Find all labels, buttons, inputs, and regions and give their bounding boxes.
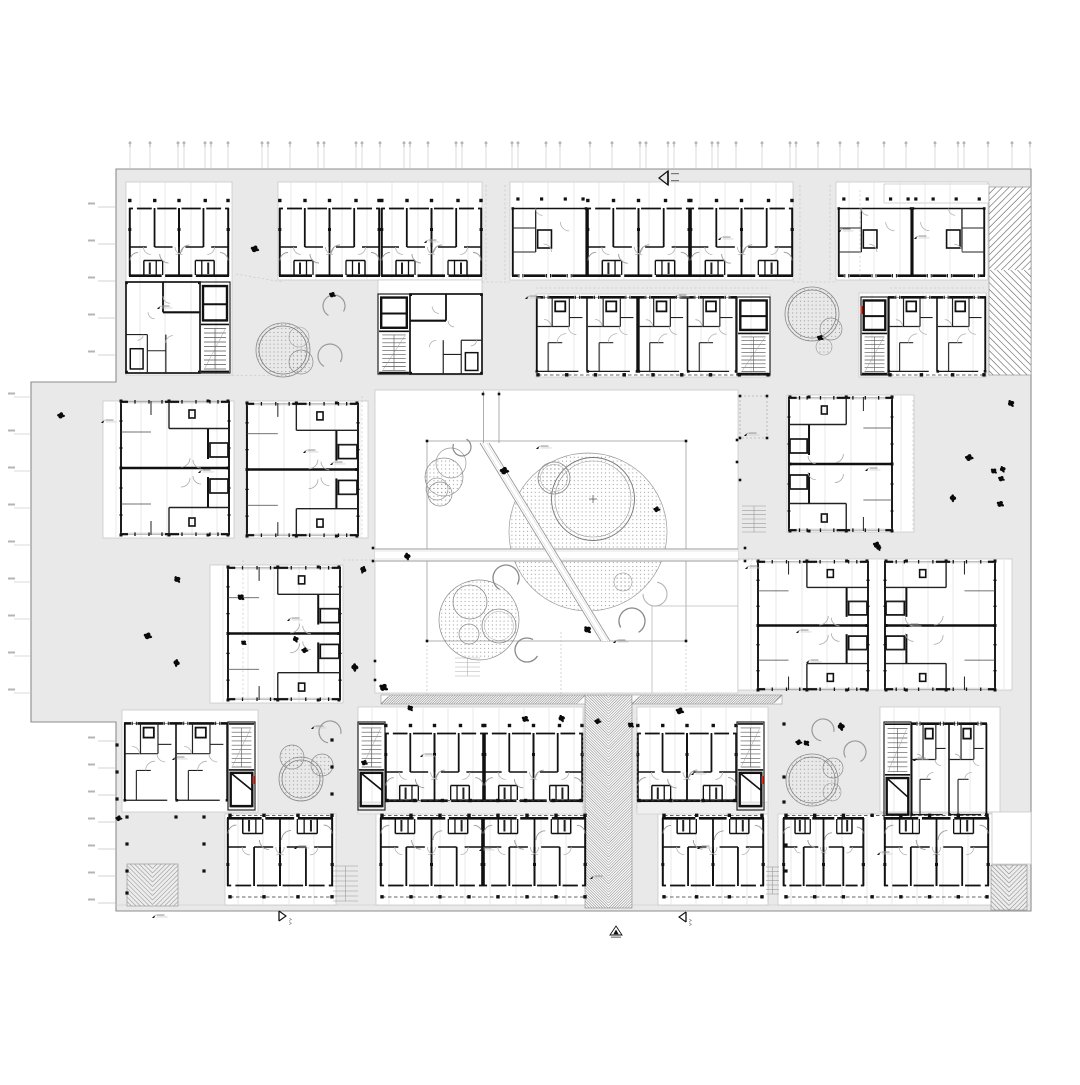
svg-text:A.A: A.A — [288, 918, 293, 925]
svg-text:A.A: A.A — [688, 919, 693, 926]
